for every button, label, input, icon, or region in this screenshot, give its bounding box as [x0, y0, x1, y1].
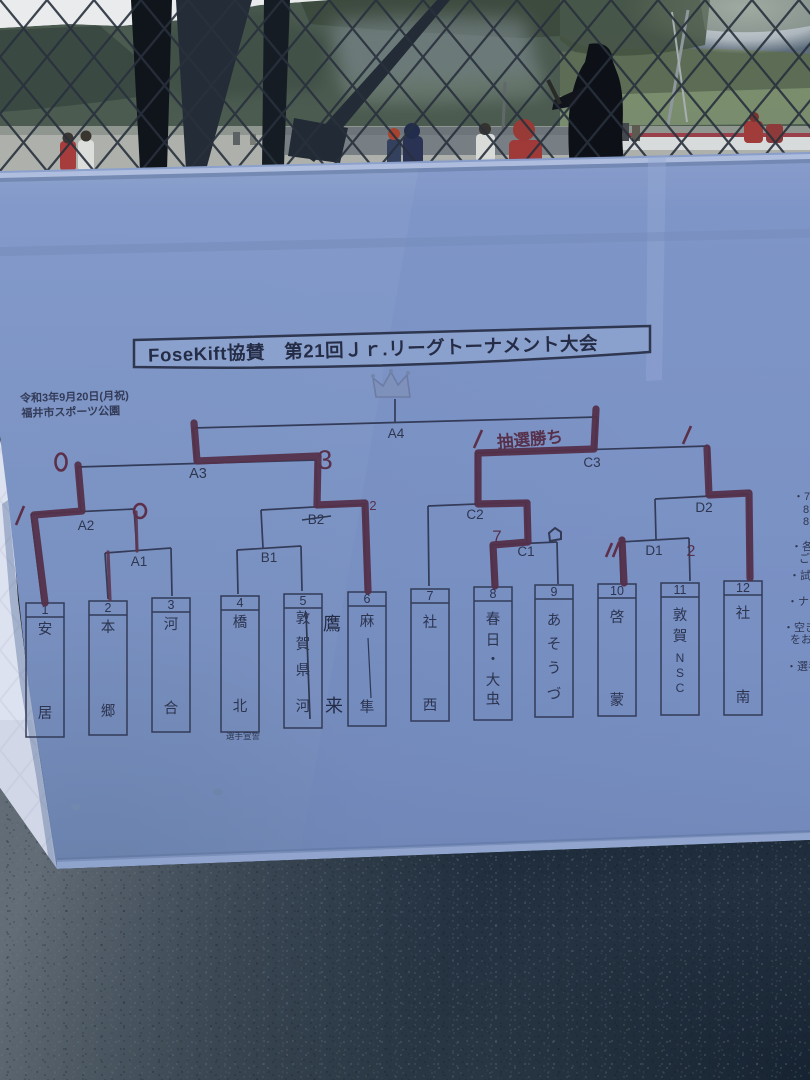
svg-text:C2: C2: [466, 507, 483, 522]
svg-text:C: C: [676, 681, 685, 695]
svg-text:をお: をお: [790, 633, 810, 646]
svg-text:隼: 隼: [360, 699, 375, 716]
svg-text:N: N: [676, 651, 685, 665]
svg-text:選手宣誓: 選手宣誓: [226, 731, 261, 741]
svg-text:9: 9: [551, 585, 558, 599]
svg-text:A2: A2: [78, 518, 95, 533]
svg-text:本: 本: [101, 619, 116, 636]
svg-text:11: 11: [674, 583, 687, 597]
svg-text:C3: C3: [583, 455, 600, 470]
svg-text:敦: 敦: [673, 607, 688, 624]
svg-text:賀: 賀: [673, 628, 688, 645]
svg-text:日: 日: [486, 633, 501, 649]
svg-text:3: 3: [168, 598, 175, 612]
svg-text:南: 南: [736, 689, 751, 706]
svg-text:合: 合: [164, 700, 179, 717]
svg-text:橋: 橋: [233, 614, 248, 631]
svg-text:8: 8: [803, 504, 809, 516]
svg-text:麻: 麻: [360, 613, 375, 630]
svg-text:・ナイ: ・ナイ: [787, 595, 810, 608]
svg-text:づ: づ: [547, 686, 562, 703]
svg-text:大: 大: [486, 672, 501, 689]
svg-text:あ: あ: [547, 612, 562, 629]
svg-text:10: 10: [610, 584, 624, 598]
svg-text:D1: D1: [645, 543, 662, 558]
svg-text:居: 居: [38, 706, 53, 722]
svg-text:7: 7: [427, 589, 434, 603]
svg-text:・7: ・7: [793, 491, 810, 503]
svg-text:8: 8: [803, 516, 809, 528]
svg-text:2: 2: [369, 498, 376, 513]
svg-text:12: 12: [736, 581, 750, 595]
svg-text:北: 北: [233, 698, 248, 715]
svg-text:敦: 敦: [296, 610, 311, 627]
svg-text:3: 3: [317, 445, 334, 476]
svg-text:郷: 郷: [101, 703, 116, 720]
svg-text:D2: D2: [695, 500, 712, 515]
svg-text:蒙: 蒙: [610, 692, 625, 709]
svg-text:5: 5: [300, 594, 307, 608]
svg-text:2: 2: [687, 543, 696, 560]
svg-text:2: 2: [105, 601, 112, 615]
svg-text:西: 西: [423, 698, 438, 714]
svg-text:う: う: [547, 661, 562, 677]
svg-text:虫: 虫: [486, 691, 501, 708]
svg-text:来: 来: [325, 696, 343, 716]
svg-text:・各: ・各: [791, 539, 810, 553]
svg-text:ご: ご: [799, 551, 810, 565]
svg-text:社: 社: [423, 614, 438, 631]
svg-text:・空き: ・空き: [783, 620, 810, 634]
svg-text:4: 4: [237, 596, 244, 610]
svg-text:社: 社: [736, 605, 751, 622]
svg-text:S: S: [676, 666, 684, 680]
svg-text:・選手: ・選手: [786, 659, 810, 673]
svg-text:・試合: ・試合: [789, 568, 810, 582]
svg-text:B1: B1: [261, 550, 278, 565]
svg-text:そ: そ: [547, 637, 562, 653]
svg-text:啓: 啓: [610, 609, 625, 626]
svg-text:A4: A4: [388, 426, 405, 441]
svg-text:安: 安: [38, 621, 53, 638]
svg-text:7: 7: [492, 527, 501, 546]
svg-text:A3: A3: [189, 466, 207, 482]
svg-text:河: 河: [164, 616, 179, 633]
svg-text:春: 春: [486, 611, 501, 628]
svg-text:・: ・: [486, 652, 501, 668]
svg-text:A1: A1: [131, 554, 148, 569]
svg-text:鷹: 鷹: [323, 613, 341, 634]
svg-text:河: 河: [296, 698, 311, 715]
